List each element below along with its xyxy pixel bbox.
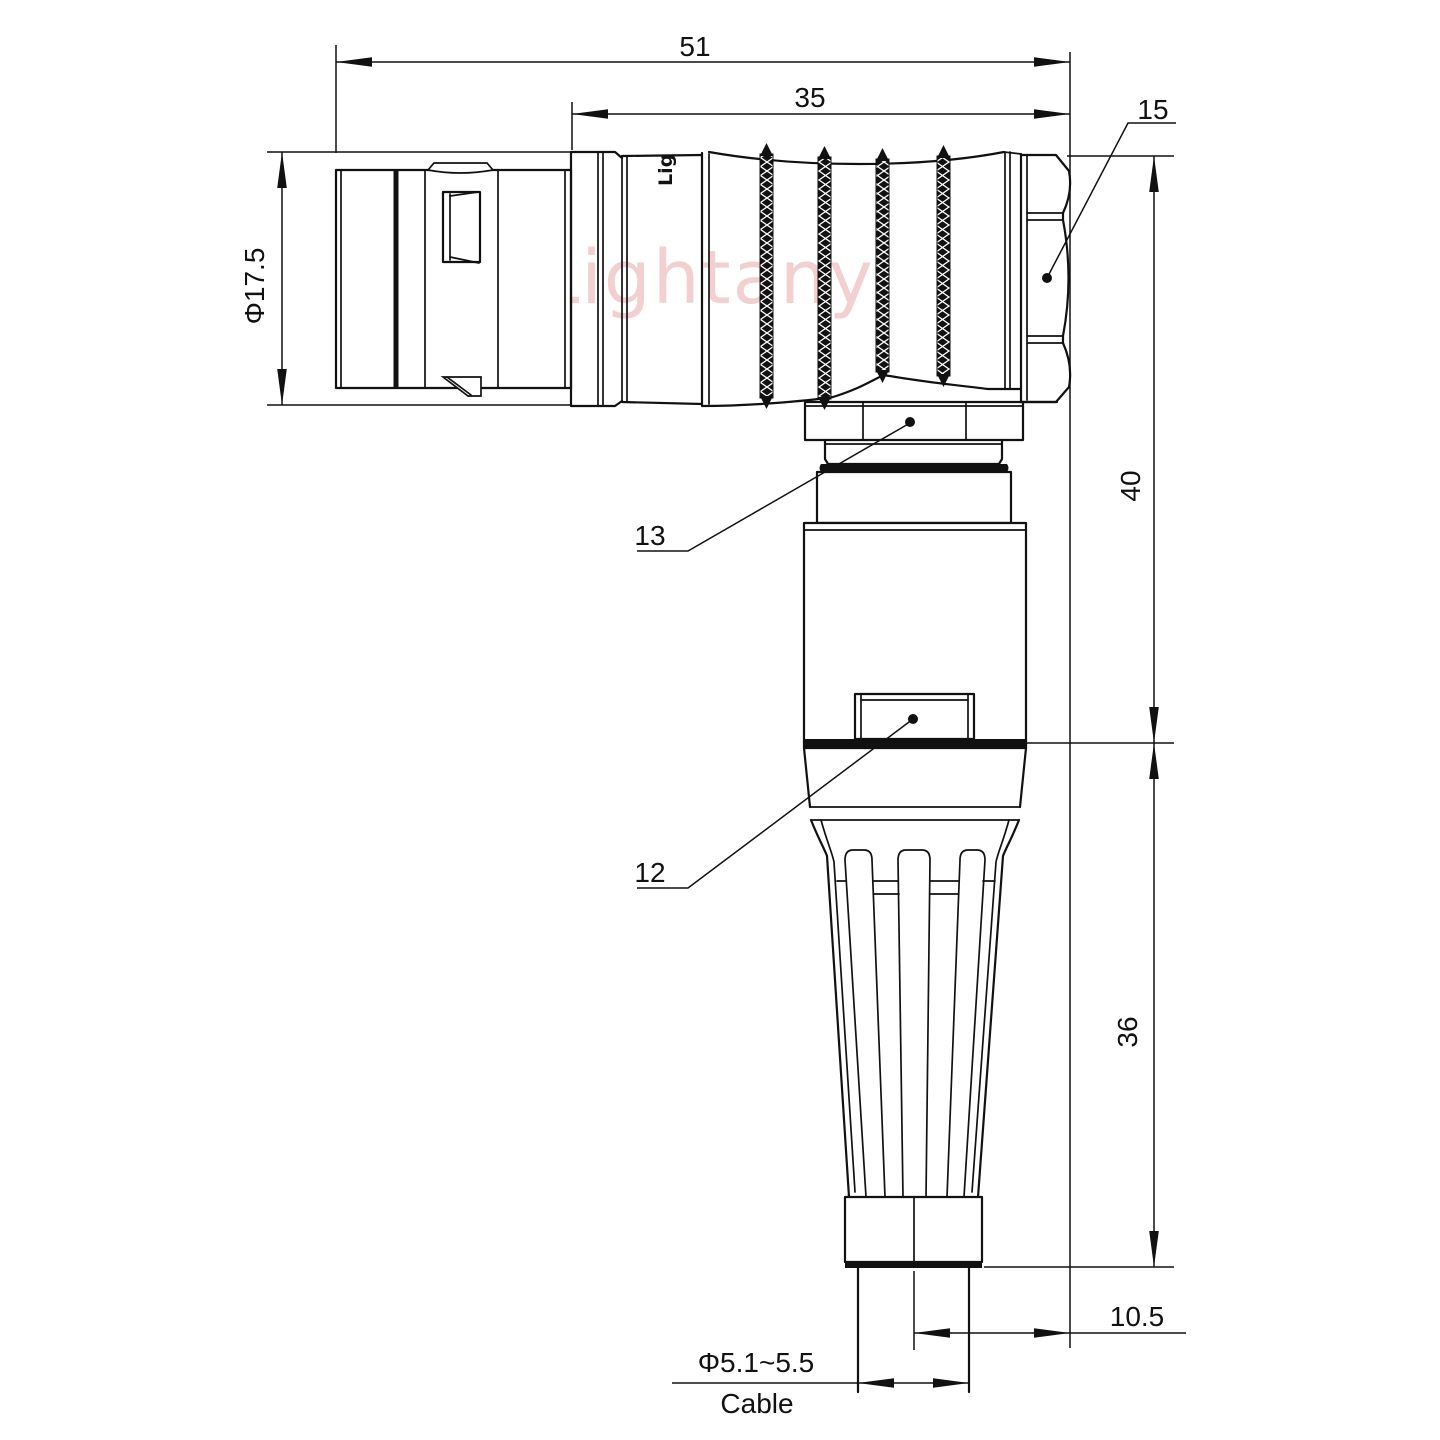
dim-label-cable-diameter: Φ5.1~5.5 xyxy=(698,1347,815,1378)
key-slot xyxy=(443,192,480,263)
dim-label-51: 51 xyxy=(679,31,710,62)
barrel-top-notch xyxy=(428,163,493,173)
dim-label-35: 35 xyxy=(794,82,825,113)
connector-side-view: Lig xyxy=(336,143,1070,1392)
dim-height-upper: 40 xyxy=(1026,156,1174,743)
cable-label: Cable xyxy=(720,1388,793,1419)
dim-label-36: 36 xyxy=(1112,1016,1143,1047)
dim-cable-diameter: Φ5.1~5.5 Cable xyxy=(672,1347,969,1419)
elbow-nut xyxy=(805,402,1057,440)
cable-sleeve xyxy=(845,1197,982,1268)
seal-ring xyxy=(820,464,1009,472)
ref-label-12: 12 xyxy=(634,857,665,888)
dim-rear-length: 35 xyxy=(572,82,1070,150)
dim-axis-offset: 10.5 xyxy=(914,1271,1186,1350)
ref-label-15: 15 xyxy=(1137,94,1168,125)
taper-section xyxy=(804,748,1026,820)
front-barrel xyxy=(336,163,571,396)
ref-label-13: 13 xyxy=(634,520,665,551)
body-engraving: Lig xyxy=(655,154,677,186)
dim-label-17-5: Φ17.5 xyxy=(239,248,270,325)
dim-label-40: 40 xyxy=(1115,470,1146,501)
collar xyxy=(817,472,1011,523)
strain-relief xyxy=(811,820,1019,1197)
connector-drawing: Lightany xyxy=(0,0,1440,1440)
washer xyxy=(825,440,1002,464)
dim-height-lower: 36 xyxy=(984,743,1174,1267)
leader-hex-nut-15: 15 xyxy=(1042,94,1176,283)
dim-label-10-5: 10.5 xyxy=(1110,1301,1165,1332)
housing xyxy=(804,523,1026,748)
drawing-canvas: Lightany xyxy=(0,0,1440,1440)
